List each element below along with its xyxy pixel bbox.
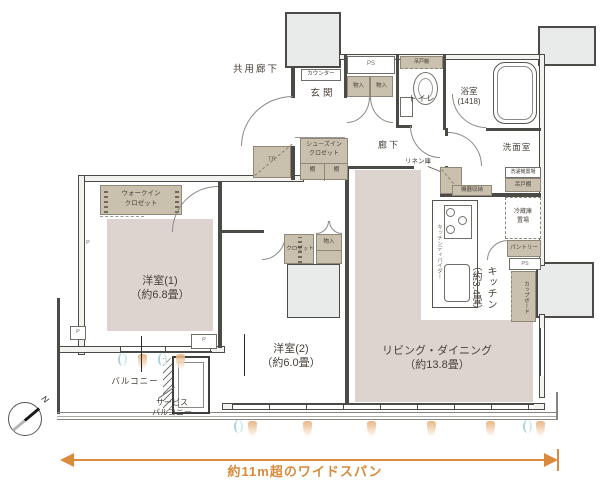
column-top-left [285, 12, 341, 68]
walk-in-closet-box: ウォークイン クロゼット [100, 185, 182, 215]
living-side-window [540, 328, 545, 376]
compass-north-label: N [37, 391, 53, 407]
column-top-right [538, 26, 596, 66]
vent-blue-mark [234, 420, 243, 433]
living-dining-size: （約13.8畳） [362, 358, 512, 372]
counter-label: カウンター [301, 71, 341, 78]
ps-label-kitchen: PS [509, 261, 541, 268]
closet-box-bedroom2: クロゼット [284, 234, 314, 264]
pillar-label-west: P [83, 240, 93, 247]
bedroom2-label: 洋室(2) （約6.0畳） [235, 342, 347, 371]
vent-blue-mark [118, 353, 127, 366]
main-window [232, 404, 534, 410]
floor-plan: TR カウンター 玄関 シューズイン クロゼット 棚 棚 PS 物入 物入 吊戸… [0, 0, 600, 485]
vent-mark [248, 421, 257, 437]
washroom-door-arc [448, 132, 482, 166]
wide-span-arrowhead-left [60, 453, 74, 467]
storage-door-arc-b2-2 [329, 221, 342, 234]
bedroom2-name: 洋室(2) [235, 342, 347, 356]
linen-storage-leader-line [428, 166, 441, 172]
shoes-in-closet-label-l1: シューズイン [301, 142, 347, 150]
balcony-label: バルコニー [98, 376, 172, 387]
vent-mark [303, 421, 312, 437]
column-center [287, 264, 340, 318]
pillar-label-south: P [191, 337, 217, 344]
shelf-label-1: 棚 [301, 167, 324, 174]
bathtub-inner [497, 66, 533, 120]
walk-in-closet-label-l1: ウォークイン [101, 190, 181, 198]
storage-box-bedroom2: 物入 [316, 234, 342, 264]
balcony-railing-midline [57, 416, 558, 417]
storage-door-arc-1 [347, 97, 370, 123]
storage-door-arc-2 [370, 97, 393, 123]
pantry-door-arc [487, 240, 508, 260]
column-right-middle [536, 262, 594, 318]
walk-in-closet-label-l2: クロゼット [101, 200, 181, 208]
trunk-room-box: TR [253, 146, 291, 178]
storage-label-bedroom2: 物入 [317, 239, 341, 246]
common-corridor-label: 共用廊下 [210, 64, 302, 76]
hanging-cupboard-toilet-label: 吊戸棚 [400, 59, 443, 66]
living-dining-floor-upper [355, 170, 421, 322]
kitchen-divider-label: キッチンディバイダー [433, 202, 442, 300]
bedroom2-size: （約6.0畳） [235, 356, 347, 370]
wall-bedroom1-east [218, 182, 222, 348]
wall-hall-bedroom2 [222, 230, 264, 233]
walk-in-closet-opening [100, 216, 144, 217]
section-marker [141, 336, 142, 372]
service-balcony-label-l2: バルコニー [134, 408, 210, 418]
wide-span-arrow-line [72, 459, 546, 461]
stove-burner-3 [446, 225, 455, 234]
vent-blue-mark [523, 420, 532, 433]
vent-mark [138, 354, 147, 370]
ps-label-top: PS [347, 61, 395, 69]
wide-span-arrowhead-right [544, 453, 558, 467]
wall-bedroom2-east [345, 167, 349, 407]
stove-burner-1 [446, 208, 455, 217]
bedroom1-label: 洋室(1) （約6.8畳） [104, 274, 216, 303]
fridge-label-l2: 置場 [505, 218, 541, 226]
bathroom-door-arc [452, 94, 486, 128]
trunk-room-label: TR [254, 157, 290, 165]
shoes-in-closet-label-l2: クロゼット [301, 151, 347, 159]
compass: N [6, 398, 50, 442]
pantry-label: パントリー [507, 245, 541, 252]
pillar-label-southwest: P [70, 329, 86, 336]
shoes-in-closet-box: シューズイン クロゼット 棚 棚 [300, 138, 348, 180]
living-dining-name: リビング・ダイニング [362, 344, 512, 358]
balcony-railing [57, 412, 558, 420]
vent-mark [486, 421, 495, 437]
kitchen-label-size: （約3.4畳） [468, 246, 483, 330]
wall-toilet-west [396, 55, 399, 127]
section-marker [244, 334, 245, 376]
storage-label-top-2: 物入 [370, 83, 393, 90]
bedroom1-name: 洋室(1) [104, 274, 216, 288]
service-balcony-label: サービス バルコニー [134, 398, 210, 419]
service-balcony-label-l1: サービス [134, 398, 210, 408]
wall-bath-south [486, 128, 541, 131]
wide-span-end-bar [557, 449, 559, 471]
linen-storage-label: リネン庫 [398, 158, 438, 166]
vent-mark [367, 421, 376, 437]
wall-balcony-west [57, 298, 60, 414]
fridge-label-l1: 冷蔵庫 [505, 209, 541, 217]
wall-entry-left-lower [291, 146, 295, 180]
toilet-label: トイレ [402, 94, 442, 104]
bedroom1-size: （約6.8畳） [104, 288, 216, 302]
toilet-door-arc [410, 126, 440, 158]
cupboard-label: カップボード [517, 274, 529, 320]
washroom-label: 洗面室 [490, 142, 544, 153]
storage-label-top-1: 物入 [347, 83, 370, 90]
entrance-label: 玄関 [300, 88, 346, 100]
balcony-railing-end [556, 392, 558, 420]
vent-mark [536, 421, 545, 437]
storage-door-arc-b2-1 [316, 221, 329, 234]
washer-space-label: 洗濯機置場 [505, 169, 541, 176]
wide-span-label: 約11m超のワイドスパン [170, 464, 440, 481]
stove-burner-2 [458, 216, 467, 225]
shelf-label-2: 棚 [325, 167, 348, 174]
vent-mark [427, 421, 436, 437]
wall-toilet-east [443, 55, 446, 130]
hanging-cupboard-washroom-label: 吊戸棚 [505, 182, 541, 189]
living-dining-label: リビング・ダイニング （約13.8畳） [362, 344, 512, 373]
closet-label: クロゼット [283, 246, 317, 253]
entrance-door-arc [241, 96, 293, 146]
corridor-label: 廊下 [366, 140, 412, 152]
equipment-storage-label: 機器収納 [452, 187, 492, 194]
vent-blue-mark [158, 353, 167, 366]
storage-box-divider [317, 250, 341, 251]
